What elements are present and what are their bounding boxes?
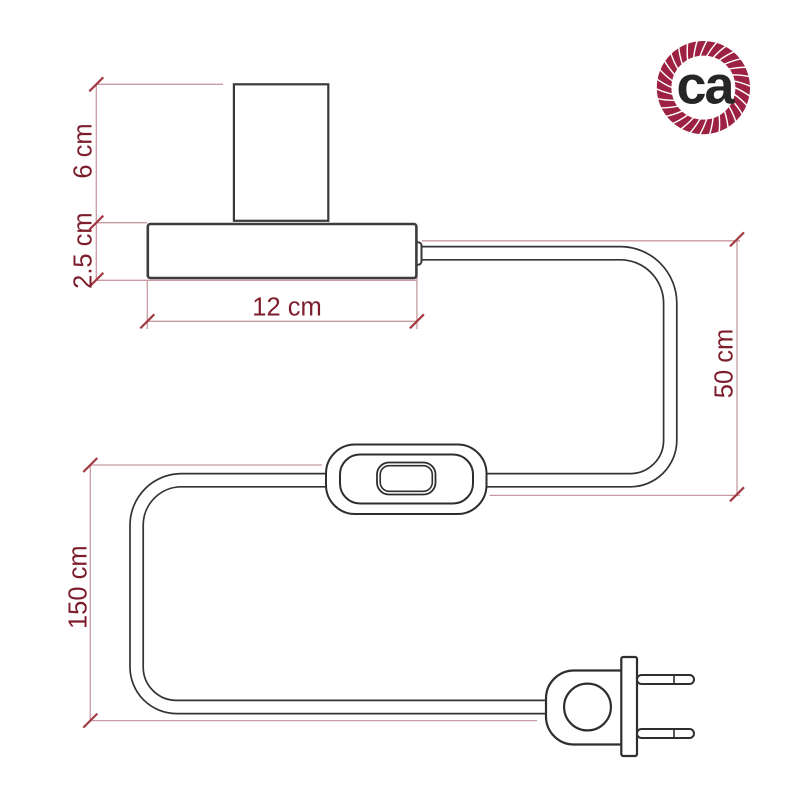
svg-text:2.5 cm: 2.5 cm (69, 212, 97, 289)
svg-text:12 cm: 12 cm (252, 294, 321, 322)
svg-text:50 cm: 50 cm (711, 329, 739, 398)
svg-text:6 cm: 6 cm (69, 123, 97, 178)
svg-text:ca: ca (676, 56, 735, 116)
svg-text:150 cm: 150 cm (65, 545, 93, 629)
